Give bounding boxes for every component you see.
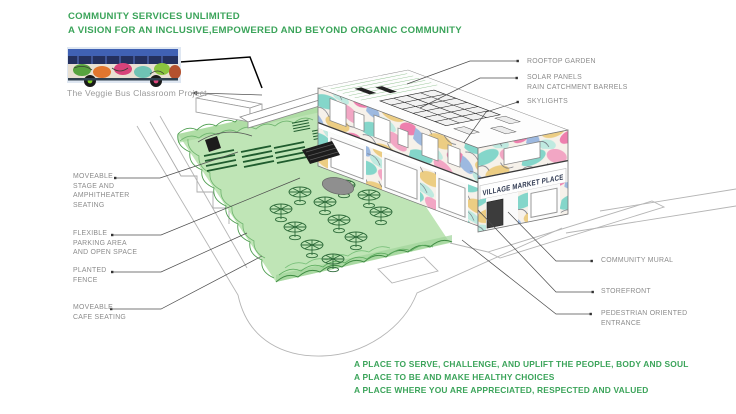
bus-illustration [66, 46, 182, 88]
callout-moveable-stage: MOVEABLE STAGE AND AMPHITHEATER SEATING [73, 172, 129, 210]
end-storefront-window [531, 188, 557, 217]
callout-cafe-seating: MOVEABLE CAFE SEATING [73, 303, 126, 322]
footer-line: A PLACE WHERE YOU ARE APPRECIATED, RESPE… [354, 384, 689, 397]
presentation-board: VILLAGE MARKET PLACE [0, 0, 736, 414]
callout-community-mural: COMMUNITY MURAL [601, 256, 673, 266]
callout-rooftop-garden: ROOFTOP GARDEN [527, 57, 596, 67]
callout-planted-fence: PLANTED FENCE [73, 266, 107, 285]
footer-line: A PLACE TO SERVE, CHALLENGE, AND UPLIFT … [354, 358, 689, 371]
veggie-bus-photo [66, 46, 182, 88]
page-title: COMMUNITY SERVICES UNLIMITED [68, 10, 462, 24]
callout-solar-panels: SOLAR PANELS RAIN CATCHMENT BARRELS [527, 73, 628, 92]
callout-skylights: SKYLIGHTS [527, 97, 568, 107]
bus-caption: The Veggie Bus Classroom Project [67, 88, 207, 98]
walkway [450, 243, 488, 252]
callout-pedestrian-entrance: PEDESTRIAN ORIENTED ENTRANCE [601, 309, 687, 328]
street-right-1 [600, 189, 736, 211]
end-facade: VILLAGE MARKET PLACE [478, 130, 568, 232]
header: COMMUNITY SERVICES UNLIMITED A VISION FO… [68, 10, 462, 37]
footer-line: A PLACE TO BE AND MAKE HEALTHY CHOICES [354, 371, 689, 384]
callout-flexible-parking: FLEXIBLE PARKING AREA AND OPEN SPACE [73, 229, 137, 258]
callout-storefront: STOREFRONT [601, 287, 651, 297]
sidewalk-pad [378, 257, 438, 283]
pedestrian-entrance [487, 199, 503, 228]
footer-statements: A PLACE TO SERVE, CHALLENGE, AND UPLIFT … [354, 358, 689, 398]
page-subtitle: A VISION FOR AN INCLUSIVE,EMPOWERED AND … [68, 24, 462, 38]
